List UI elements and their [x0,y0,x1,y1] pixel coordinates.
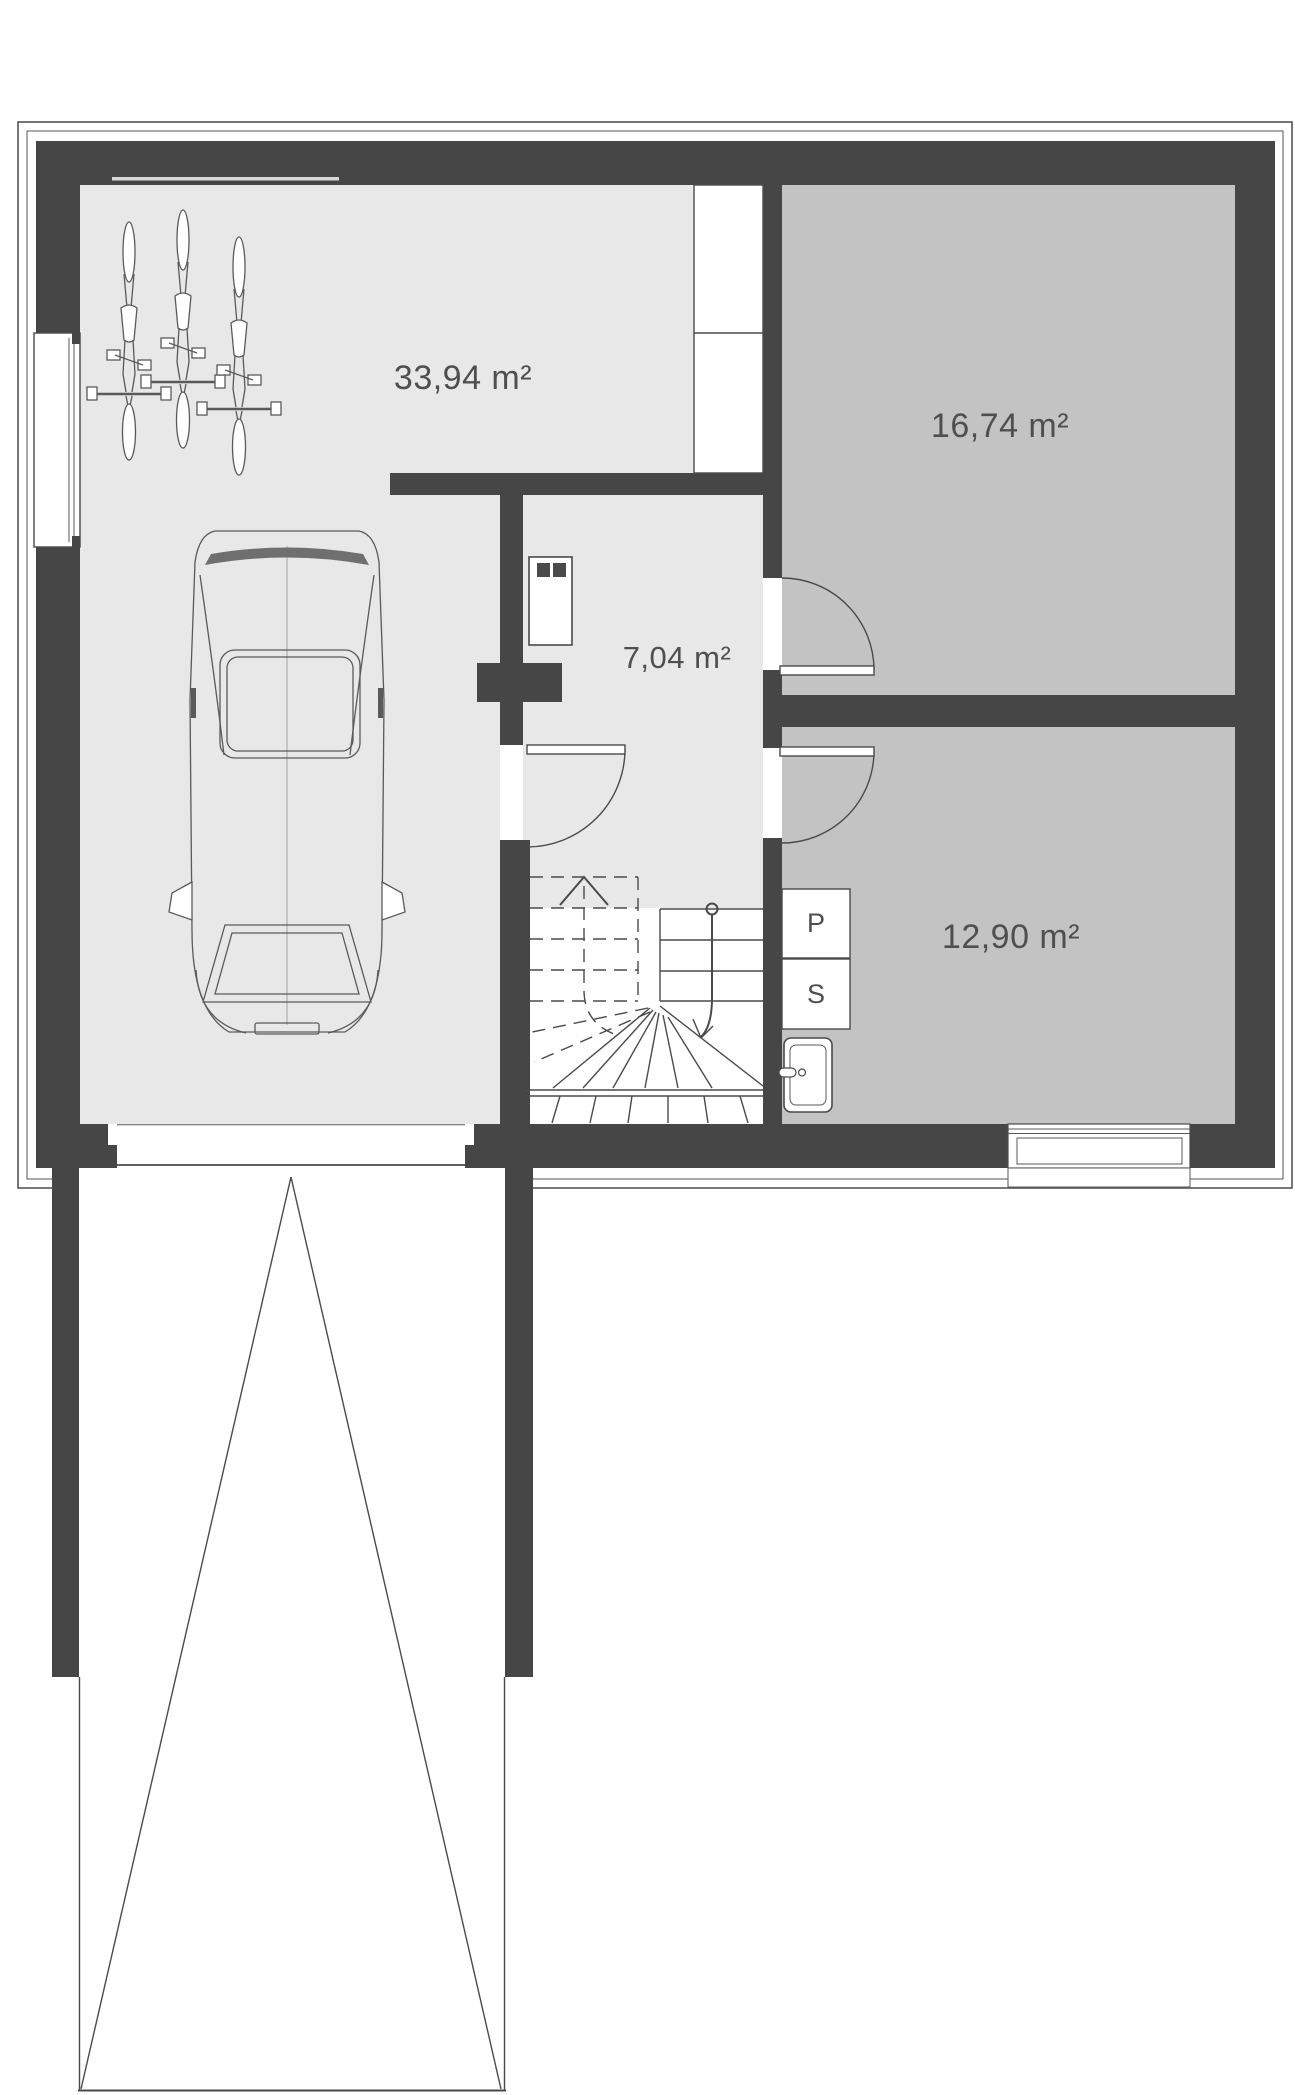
top-wall-lintel-line [112,177,339,181]
closet [694,185,763,473]
driveway [52,1168,533,2092]
area-label-corridor: 7,04 m² [623,640,732,675]
area-label-room-top-right: 16,74 m² [931,407,1069,445]
garage-window [34,333,80,547]
area-label-garage: 33,94 m² [394,359,532,397]
appliance-s-label: S [807,979,825,1009]
basement-window [1008,1124,1190,1187]
garage-door [108,1124,474,1168]
driveway-surface [70,1168,510,2092]
appliance-p: P [782,889,850,958]
appliance-p-label: P [807,908,825,938]
floor-plan: P S [0,0,1295,2095]
driveway-wall-right [505,1168,533,1677]
driveway-wall-left [52,1168,79,1677]
switchboard-cabinet [529,557,572,645]
area-label-room-bottom-right: 12,90 m² [942,918,1080,956]
corridor-garage-opening [500,745,523,840]
light-well [1008,1168,1190,1187]
appliance-s: S [782,959,850,1029]
floor-plan-svg: P S [0,0,1295,2095]
utility-sink [779,1038,832,1112]
